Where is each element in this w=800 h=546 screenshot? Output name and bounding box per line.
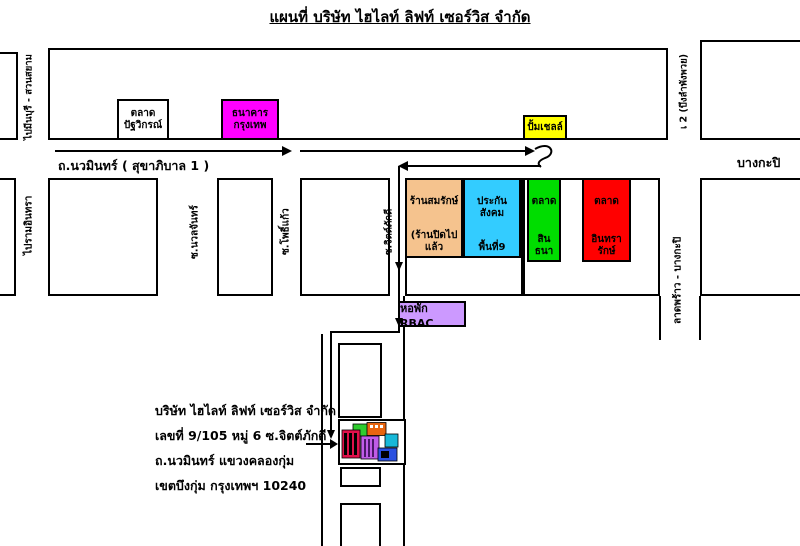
city-block [700, 40, 800, 140]
arrowhead-left-icon [398, 161, 408, 171]
company-buildings-illustration [341, 422, 403, 462]
road-label-to-minburi: ไปมีนบุรี - สวนสยาม [20, 54, 38, 140]
landmark-shell-station: ปั้มเชลล์ [523, 115, 567, 140]
soi-lot [340, 503, 381, 546]
city-block [217, 178, 273, 296]
city-block [48, 178, 158, 296]
road-label-text: บางกะปิ [737, 155, 780, 170]
landmark-text: (ร้านปิดไปแล้ว [408, 230, 460, 253]
company-address: บริษัท ไฮไลท์ ลิฟท์ เซอร์วิส จำกัด เลขที… [155, 398, 336, 498]
company-location-map: แผนที่ บริษัท ไฮไลท์ ลิฟท์ เซอร์วิส จำกั… [0, 0, 800, 546]
map-title-text: แผนที่ บริษัท ไฮไลท์ ลิฟท์ เซอร์วิส จำกั… [269, 8, 530, 26]
road-label-soi-chitphakdi: ซ.จิตต์ภักดี [381, 180, 397, 284]
map-title: แผนที่ บริษัท ไฮไลท์ ลิฟท์ เซอร์วิส จำกั… [0, 5, 800, 29]
landmark-text: หอพัก RBAC [400, 299, 464, 330]
road-label-soi-phokaew: ซ.โพธิ์แก้ว [277, 180, 295, 284]
landmark-text: ตลาด [594, 196, 619, 208]
arrowhead-right-icon [525, 146, 535, 156]
company-address-line: เลขที่ 9/105 หมู่ 6 ซ.จิตต์ภักดี [155, 423, 336, 448]
road-label-text: ซ.โพธิ์แก้ว [279, 209, 294, 256]
road-line [659, 296, 661, 340]
landmark-text: อินทรารักษ์ [585, 234, 628, 257]
landmark-rbac-dormitory: หอพัก RBAC [398, 301, 466, 327]
arrowhead-right-icon [282, 146, 292, 156]
landmark-somrak-shop: ร้านสมรักษ์ (ร้านปิดไปแล้ว [405, 178, 463, 258]
road-label-text: ไปรามอินทรา [22, 195, 37, 254]
road-label-text: ลาดพร้าว - บางกะปิ [671, 236, 686, 323]
landmark-sinthana-market: ตลาด สินธนา [527, 178, 561, 262]
landmark-text: กรุงเทพ [234, 120, 267, 132]
company-address-line: ถ.นวมินทร์ แขวงคลองกุ่ม [155, 448, 336, 473]
road-label-text: ไปมีนบุรี - สวนสยาม [22, 54, 37, 140]
landmark-text: พื้นที่9 [479, 242, 506, 254]
city-block [0, 52, 18, 140]
landmark-social-security-area9: ประกันสังคม พื้นที่9 [463, 178, 521, 258]
city-block [0, 178, 16, 296]
road-label-text: ถ.นวมินทร์ ( สุขาภิบาล 1 ) [58, 158, 209, 173]
company-address-line: บริษัท ไฮไลท์ ลิฟท์ เซอร์วิส จำกัด [155, 398, 336, 423]
landmark-text: ประกันสังคม [466, 196, 518, 219]
city-block [300, 178, 390, 296]
landmark-text: ปัฐวิกรณ์ [124, 120, 162, 132]
road-label-to-ramindra: ไปรามอินทรา [20, 182, 38, 268]
landmark-text: ร้านสมรักษ์ [410, 196, 459, 208]
landmark-bangkok-bank: ธนาคาร กรุงเทพ [221, 99, 279, 140]
city-block [700, 178, 800, 296]
landmark-text: ตลาด [131, 108, 156, 120]
road-label-text: เ 2 (บึงลำพังพวย) [677, 53, 692, 128]
road-label-text: ซ.จิตต์ภักดี [382, 209, 397, 255]
road-label-ladprao-bangkapi: ลาดพร้าว - บางกะปิ [669, 226, 687, 334]
u-turn-arrow-icon [535, 146, 551, 167]
road-label-bangkapi: บางกะปิ [737, 153, 780, 173]
soi-lot [340, 467, 381, 487]
soi-lot [338, 343, 382, 418]
landmark-text: สินธนา [530, 234, 558, 257]
road-label-nawamin: ถ.นวมินทร์ ( สุขาภิบาล 1 ) [58, 156, 209, 176]
road-label-text: ซ.นวลจันทร์ [188, 205, 203, 259]
landmark-pattawikorn-market: ตลาด ปัฐวิกรณ์ [117, 99, 169, 140]
landmark-text: ตลาด [532, 196, 557, 208]
road-label-top-right: เ 2 (บึงลำพังพวย) [675, 42, 693, 140]
company-address-line: เขตบึงกุ่ม กรุงเทพฯ 10240 [155, 473, 336, 498]
landmark-intharak-market: ตลาด อินทรารักษ์ [582, 178, 631, 262]
road-label-soi-nuanchan: ซ.นวลจันทร์ [186, 180, 204, 284]
road-line [699, 296, 701, 340]
landmark-text: ธนาคาร [232, 108, 268, 120]
landmark-text: ปั้มเชลล์ [527, 122, 562, 134]
company-location-box [338, 419, 406, 465]
